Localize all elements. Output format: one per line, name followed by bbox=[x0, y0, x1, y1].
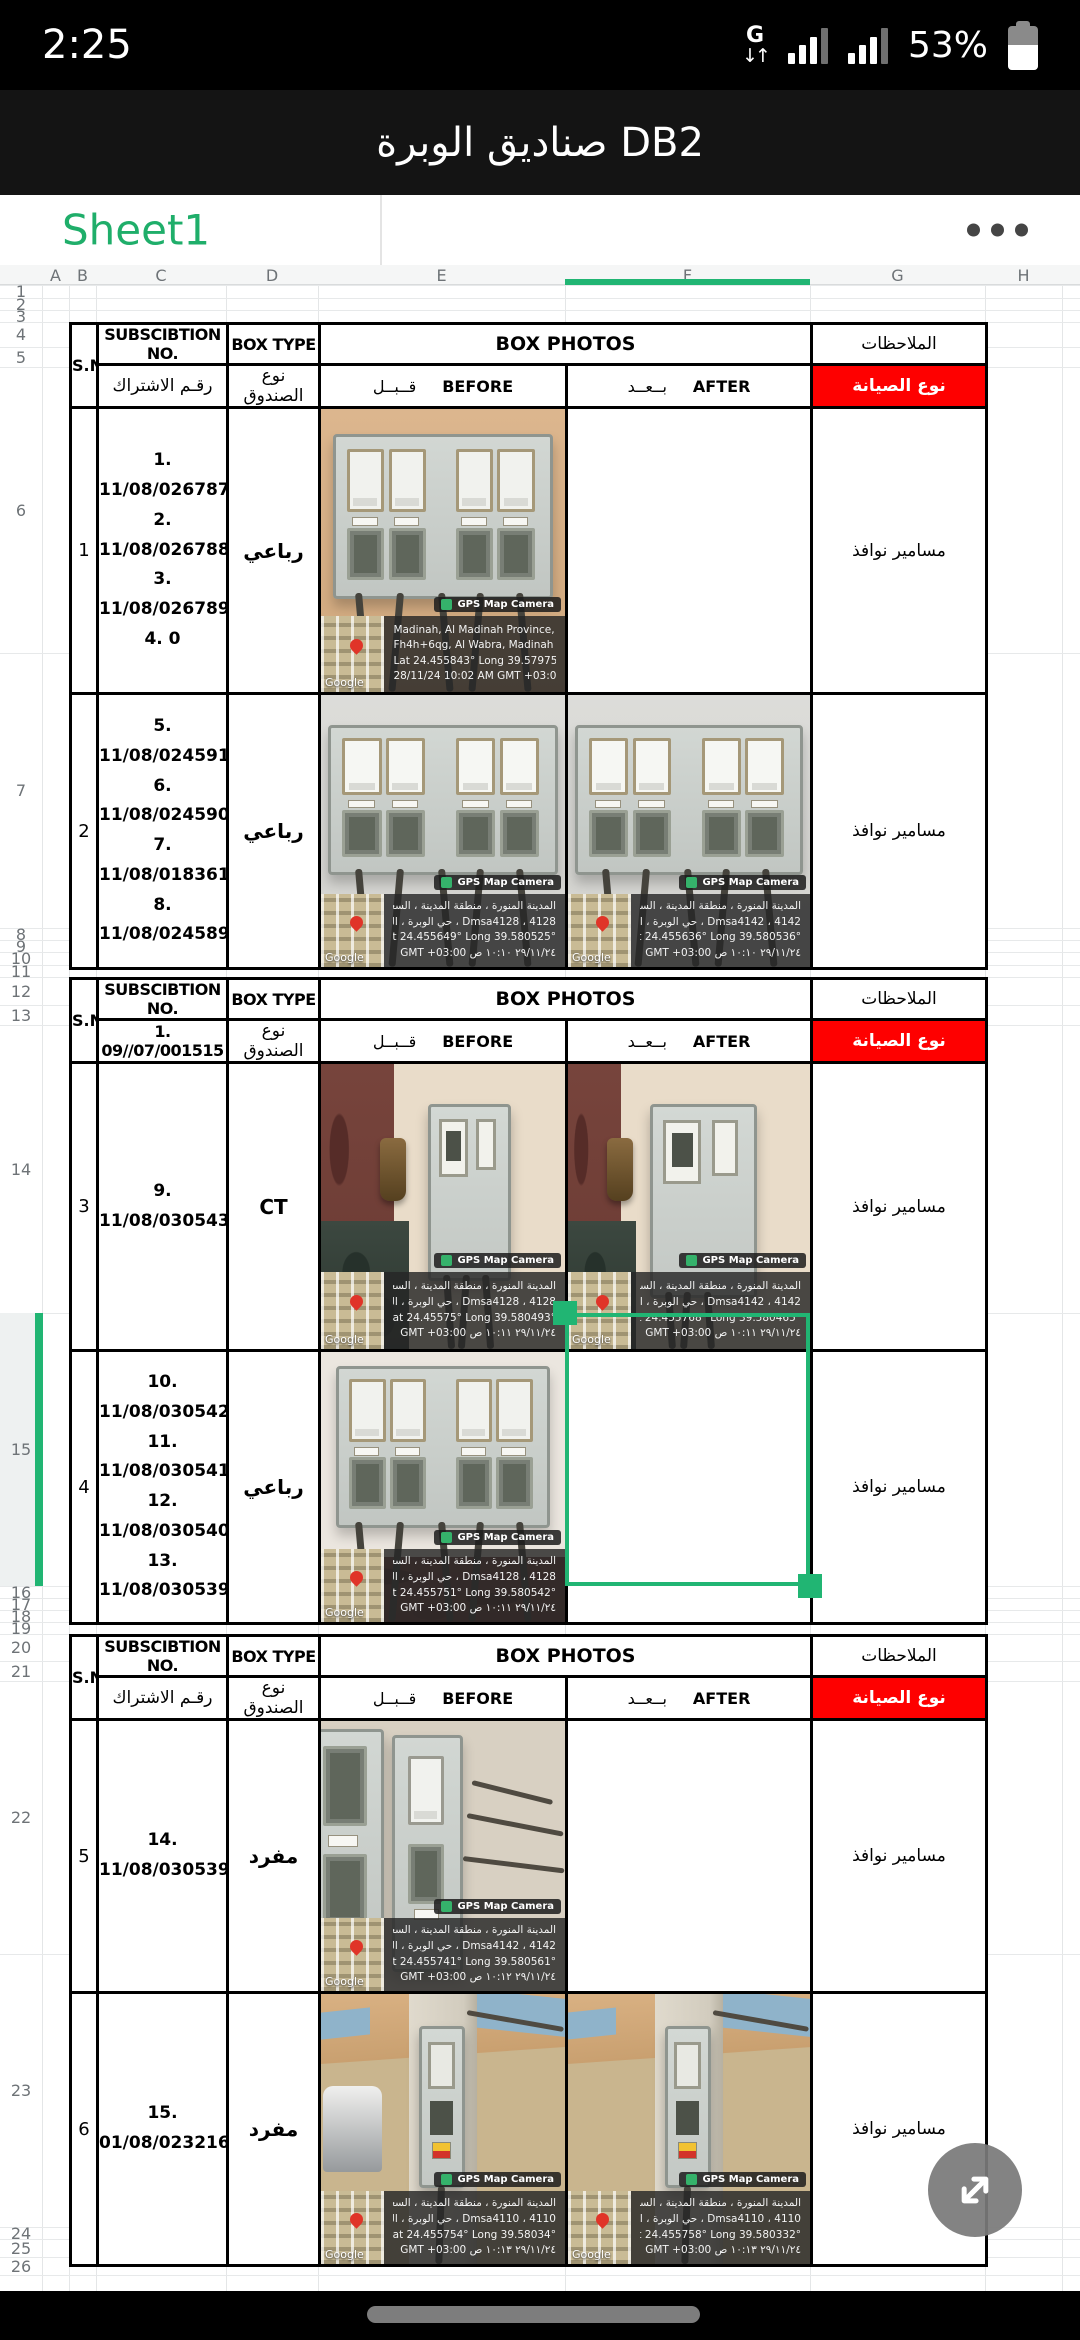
gridline bbox=[42, 265, 43, 2291]
map-pin-icon bbox=[347, 636, 365, 654]
column-header-E[interactable]: E bbox=[318, 265, 565, 285]
gesture-pill[interactable] bbox=[367, 2306, 700, 2323]
cell-after-photo[interactable]: GPS Map CameraGoogleالمدينة المنورة ، من… bbox=[567, 1063, 812, 1351]
meter-glass bbox=[408, 1844, 444, 1904]
meter-label bbox=[503, 517, 529, 526]
watermark-line: المدينة المنورة ، منطقة المدينة ، السعود… bbox=[393, 2197, 556, 2211]
cell-after-photo[interactable]: GPS Map CameraGoogleالمدينة المنورة ، من… bbox=[567, 1993, 812, 2266]
row-header-21[interactable]: 21 bbox=[0, 1661, 42, 1681]
watermark-text: المدينة المنورة ، منطقة المدينة ، السعود… bbox=[384, 1918, 565, 1991]
watermark-line: Lat 24.455741° Long 39.580561° bbox=[393, 1956, 556, 1970]
gps-map-camera-badge: GPS Map Camera bbox=[679, 2172, 806, 2187]
gridline bbox=[1062, 265, 1063, 2291]
cell-before-photo[interactable]: GPS Map CameraGoogleMadinah, Al Madinah … bbox=[320, 408, 567, 694]
cell-sn[interactable]: 1 bbox=[71, 408, 98, 694]
meter-window bbox=[745, 738, 784, 795]
expand-fullscreen-button[interactable] bbox=[928, 2143, 1022, 2237]
watermark-line: Lat 24.455758° Long 39.580332° bbox=[640, 2229, 801, 2243]
signal-bars-icon bbox=[848, 26, 888, 64]
gps-camera-icon bbox=[441, 2174, 452, 2185]
subscription-number: 4. 0 bbox=[99, 625, 226, 655]
cell-subscriptions[interactable]: 10. 11/08/03054211. 11/08/03054112. 11/0… bbox=[98, 1351, 228, 1624]
row-header-14[interactable]: 14 bbox=[0, 1025, 42, 1313]
watermark-line: ٢٩/١١/٢٤ ١٠:١٠ ص GMT +03:00 bbox=[393, 947, 556, 961]
gps-camera-icon bbox=[441, 877, 452, 888]
header-notes[interactable]: الملاحظات bbox=[812, 1636, 987, 1677]
header-box-photos[interactable]: BOX PHOTOS bbox=[320, 979, 812, 1020]
row-header-26[interactable]: 26 bbox=[0, 2257, 42, 2275]
sky bbox=[321, 2008, 370, 2040]
before-label-ar: قــبــل bbox=[373, 1032, 416, 1051]
meter-label bbox=[708, 800, 735, 809]
row-header-6[interactable]: 6 bbox=[0, 367, 42, 653]
meter-window bbox=[456, 1379, 493, 1441]
header-before[interactable]: قــبــلBEFORE bbox=[320, 1020, 567, 1063]
header-before[interactable]: قــبــلBEFORE bbox=[320, 365, 567, 408]
header-box-type[interactable]: BOX TYPE bbox=[228, 1636, 320, 1677]
watermark-text: المدينة المنورة ، منطقة المدينة ، السعود… bbox=[631, 894, 810, 967]
cell-before-photo[interactable]: GPS Map CameraGoogleالمدينة المنورة ، من… bbox=[320, 1720, 567, 1993]
watermark-line: Dmsa4128 ، 4128 ، حي الوبرة ، المدينة ال… bbox=[393, 1571, 556, 1585]
cell-sn[interactable]: 6 bbox=[71, 1993, 98, 2266]
cell-note[interactable]: مسامير نوافذ bbox=[812, 694, 987, 969]
watermark-line: Lat 24.455843° Long 39.579758° bbox=[393, 655, 556, 669]
map-thumbnail: Google bbox=[568, 2191, 631, 2264]
gps-camera-icon bbox=[441, 1532, 452, 1543]
map-pin-icon bbox=[347, 1937, 365, 1955]
meter-box bbox=[328, 725, 557, 875]
meter-label bbox=[328, 1835, 358, 1847]
column-header-D[interactable]: D bbox=[226, 265, 318, 285]
header-subscription-no[interactable]: SUBSCIBTION NO. bbox=[98, 979, 228, 1020]
maintenance-table: S.NSUBSCIBTION NO.BOX TYPEBOX PHOTOSالمل… bbox=[69, 322, 988, 970]
battery-percent: 53% bbox=[908, 25, 988, 66]
warning-sticker bbox=[678, 2142, 696, 2159]
watermark-text: المدينة المنورة ، منطقة المدينة ، السعود… bbox=[384, 1272, 565, 1349]
meter-box bbox=[333, 434, 553, 598]
map-attribution: Google bbox=[325, 1975, 364, 1988]
header-box-photos[interactable]: BOX PHOTOS bbox=[320, 324, 812, 365]
cell-subscriptions[interactable]: 14. 11/08/030539 bbox=[98, 1720, 228, 1993]
meter-glass bbox=[323, 1854, 366, 1924]
meter-window bbox=[497, 449, 534, 512]
status-bar: 2:25 G↓↑ 53% bbox=[0, 0, 1080, 90]
watermark-text: المدينة المنورة ، منطقة المدينة ، السعود… bbox=[631, 1272, 810, 1349]
map-thumbnail: Google bbox=[321, 2191, 384, 2264]
header-sn[interactable]: S.N bbox=[71, 979, 98, 1063]
gps-map-camera-badge: GPS Map Camera bbox=[434, 1253, 561, 1268]
header-after[interactable]: بــعــدAFTER bbox=[567, 1677, 812, 1720]
meter-box bbox=[665, 2026, 711, 2188]
row-header-13[interactable]: 13 bbox=[0, 1005, 42, 1025]
map-pin-icon bbox=[347, 2210, 365, 2228]
map-thumbnail: Google bbox=[568, 894, 631, 967]
column-header-A[interactable]: A bbox=[42, 265, 69, 285]
box-photo-before: GPS Map CameraGoogleالمدينة المنورة ، من… bbox=[321, 1994, 565, 2264]
meter-glass bbox=[702, 810, 741, 857]
map-attribution: Google bbox=[572, 1333, 611, 1346]
cell-subscriptions[interactable]: 15. 01/08/023216 bbox=[98, 1993, 228, 2266]
cell-after-photo[interactable] bbox=[567, 1351, 812, 1624]
meter-window bbox=[496, 1379, 533, 1441]
meter-glass bbox=[342, 810, 381, 857]
selected-column-indicator bbox=[565, 279, 810, 285]
cell-subscriptions[interactable]: 5. 11/08/0245916. 11/08/0245907. 11/08/0… bbox=[98, 694, 228, 969]
wall-cable bbox=[472, 1780, 554, 1805]
after-label-en: AFTER bbox=[693, 1032, 750, 1051]
cell-sn[interactable]: 2 bbox=[71, 694, 98, 969]
header-maintenance-type[interactable]: نوع الصيانة bbox=[812, 1677, 987, 1720]
row-header-20[interactable]: 20 bbox=[0, 1634, 42, 1661]
box-photo-before: GPS Map CameraGoogleMadinah, Al Madinah … bbox=[321, 409, 565, 692]
cell-box-type[interactable]: CT bbox=[228, 1063, 320, 1351]
map-attribution: Google bbox=[325, 1333, 364, 1346]
cell-subscriptions[interactable]: 9. 11/08/030543 bbox=[98, 1063, 228, 1351]
meter-glass bbox=[323, 1746, 366, 1826]
gps-map-camera-badge: GPS Map Camera bbox=[434, 875, 561, 890]
meter-glass bbox=[389, 528, 426, 580]
watermark-line: المدينة المنورة ، منطقة المدينة ، السعود… bbox=[640, 2197, 801, 2211]
row-header-19[interactable]: 19 bbox=[0, 1622, 42, 1634]
selection-handle-bottom-right[interactable] bbox=[798, 1574, 822, 1598]
meter-glass bbox=[347, 528, 384, 580]
subscription-number: 2. 11/08/026788 bbox=[99, 506, 226, 566]
meter-label bbox=[638, 800, 665, 809]
watermark-line: Dmsa4128 ، 4128 ، حي الوبرة ، المدينة ال… bbox=[393, 916, 556, 930]
cell-box-type[interactable]: رباعي bbox=[228, 694, 320, 969]
meter-label bbox=[392, 800, 419, 809]
watermark-text: المدينة المنورة ، منطقة المدينة ، السعود… bbox=[384, 2191, 565, 2264]
ct-meter-display bbox=[446, 1131, 461, 1161]
header-subscription-no[interactable]: SUBSCIBTION NO. bbox=[98, 1636, 228, 1677]
ct-window bbox=[663, 1120, 701, 1184]
cell-box-type[interactable]: مفرد bbox=[228, 1993, 320, 2266]
gps-map-camera-badge: GPS Map Camera bbox=[434, 597, 561, 612]
photo-watermark: Googleالمدينة المنورة ، منطقة المدينة ، … bbox=[568, 1272, 810, 1349]
after-label-en: AFTER bbox=[693, 377, 750, 396]
meter-window bbox=[408, 1756, 444, 1825]
header-subscription-no-ar[interactable]: رقـم الاشتراك bbox=[98, 1677, 228, 1720]
header-box-type-ar[interactable]: نوع الصندوق bbox=[228, 1677, 320, 1720]
row-header-24[interactable]: 24 bbox=[0, 2227, 42, 2239]
cell-after-photo[interactable]: GPS Map CameraGoogleالمدينة المنورة ، من… bbox=[567, 694, 812, 969]
header-maintenance-type[interactable]: نوع الصيانة bbox=[812, 365, 987, 408]
subscription-number: 1. 11/08/026787 bbox=[99, 446, 226, 506]
watermark-line: Dmsa4142 ، 4142 ، حي الوبرة ، المدينة ال… bbox=[640, 1296, 801, 1310]
watermark-line: Lat 24.455751° Long 39.580542° bbox=[393, 1587, 556, 1601]
meter-label bbox=[461, 1447, 486, 1456]
subscription-number: 5. 11/08/024591 bbox=[99, 712, 226, 772]
meter-glass bbox=[456, 810, 495, 857]
meter-window bbox=[589, 738, 628, 795]
meter-label bbox=[595, 800, 622, 809]
row-header-12[interactable]: 12 bbox=[0, 977, 42, 1005]
cell-note[interactable]: مسامير نوافذ bbox=[812, 1063, 987, 1351]
map-pin-icon bbox=[594, 2210, 612, 2228]
watermark-line: Dmsa4128 ، 4128 ، حي الوبرة ، المدينة ال… bbox=[393, 1296, 556, 1310]
box-photo-after: GPS Map CameraGoogleالمدينة المنورة ، من… bbox=[568, 1994, 810, 2264]
meter-glass bbox=[430, 2101, 453, 2135]
box-photo-before: GPS Map CameraGoogleالمدينة المنورة ، من… bbox=[321, 1064, 565, 1349]
meter-glass bbox=[390, 1457, 427, 1508]
gps-map-camera-badge: GPS Map Camera bbox=[434, 1530, 561, 1545]
subscription-number: 3. 11/08/026789 bbox=[99, 565, 226, 625]
watermark-line: Lat 24.455754° Long 39.58034° bbox=[393, 2229, 556, 2243]
subscription-number: 8. 11/08/024589 bbox=[99, 891, 226, 951]
map-attribution: Google bbox=[325, 676, 364, 689]
meter-window bbox=[349, 1379, 386, 1441]
map-attribution: Google bbox=[325, 2248, 364, 2261]
meter-flap bbox=[428, 2042, 455, 2089]
warning-sticker bbox=[432, 2142, 451, 2159]
watermark-text: المدينة المنورة ، منطقة المدينة ، السعود… bbox=[384, 1549, 565, 1622]
meter-glass bbox=[349, 1457, 386, 1508]
gridline bbox=[0, 298, 1080, 299]
after-label-ar: بــعــد bbox=[628, 1689, 667, 1708]
meter-glass bbox=[745, 810, 784, 857]
watermark-line: Fh4h+6qg, Al Wabra, Madinah 42371, Saudi… bbox=[393, 639, 556, 653]
photo-watermark: Googleالمدينة المنورة ، منطقة المدينة ، … bbox=[321, 2191, 565, 2264]
cell-before-photo[interactable]: GPS Map CameraGoogleالمدينة المنورة ، من… bbox=[320, 1351, 567, 1624]
meter-window bbox=[342, 738, 381, 795]
subscription-number: 6. 11/08/024590 bbox=[99, 772, 226, 832]
meter-window bbox=[390, 1379, 427, 1441]
before-label-en: BEFORE bbox=[442, 1689, 513, 1708]
gridline bbox=[0, 2275, 1080, 2276]
cell-box-type[interactable]: رباعي bbox=[228, 1351, 320, 1624]
meter-label bbox=[394, 517, 420, 526]
ct-window bbox=[439, 1119, 468, 1177]
watermark-line: Dmsa4110 ، 4110 ، حي الوبرة ، المدينة ال… bbox=[640, 2213, 801, 2227]
cell-note[interactable]: مسامير نوافذ bbox=[812, 408, 987, 694]
map-thumbnail: Google bbox=[321, 894, 384, 967]
spreadsheet-grid[interactable]: ABCDEFGH12345678910111213141516171819202… bbox=[0, 265, 1080, 2291]
photo-watermark: Googleالمدينة المنورة ، منطقة المدينة ، … bbox=[321, 1549, 565, 1622]
cell-sn[interactable]: 4 bbox=[71, 1351, 98, 1624]
after-label-ar: بــعــد bbox=[628, 377, 667, 396]
meter-label bbox=[348, 800, 375, 809]
watermark-line: المدينة المنورة ، منطقة المدينة ، السعود… bbox=[393, 900, 556, 914]
gps-map-camera-badge: GPS Map Camera bbox=[679, 875, 806, 890]
watermark-text: Madinah, Al Madinah Province, Saudi Arab… bbox=[384, 616, 565, 692]
box-photo-before: GPS Map CameraGoogleالمدينة المنورة ، من… bbox=[321, 1721, 565, 1991]
cell-subscriptions[interactable]: 1. 11/08/0267872. 11/08/0267883. 11/08/0… bbox=[98, 408, 228, 694]
watermark-line: Dmsa4110 ، 4110 ، حي الوبرة ، المدينة ال… bbox=[393, 2213, 556, 2227]
watermark-line: ٢٩/١١/٢٤ ١٠:١٠ ص GMT +03:00 bbox=[640, 947, 801, 961]
map-pin-icon bbox=[347, 1292, 365, 1310]
row-header-25[interactable]: 25 bbox=[0, 2239, 42, 2257]
gps-map-camera-badge: GPS Map Camera bbox=[434, 2172, 561, 2187]
wall-lantern bbox=[380, 1138, 407, 1201]
cell-note[interactable]: مسامير نوافذ bbox=[812, 1351, 987, 1624]
wall-cable bbox=[462, 1856, 564, 1873]
meter-flap bbox=[674, 2042, 700, 2089]
meter-box bbox=[575, 725, 802, 875]
row-header-5[interactable]: 5 bbox=[0, 347, 42, 367]
meter-glass bbox=[633, 810, 672, 857]
watermark-line: Dmsa4142 ، 4142 ، حي الوبرة ، المدينة ال… bbox=[393, 1940, 556, 1954]
meter-window bbox=[347, 449, 384, 512]
battery-icon bbox=[1008, 21, 1038, 70]
sky bbox=[568, 2008, 616, 2040]
gps-camera-icon bbox=[686, 2174, 697, 2185]
photo-watermark: GoogleMadinah, Al Madinah Province, Saud… bbox=[321, 616, 565, 692]
watermark-line: Madinah, Al Madinah Province, Saudi Arab… bbox=[393, 624, 556, 638]
gps-camera-icon bbox=[686, 877, 697, 888]
subscription-number: 7. 11/08/018361 bbox=[99, 831, 226, 891]
header-subscription-no-ar[interactable]: 1. 09//07/001515 bbox=[98, 1020, 228, 1063]
header-notes[interactable]: الملاحظات bbox=[812, 979, 987, 1020]
map-attribution: Google bbox=[572, 951, 611, 964]
signal-bars-icon bbox=[788, 26, 828, 64]
tab-sheet1[interactable]: Sheet1 bbox=[62, 206, 210, 255]
cell-sn[interactable]: 3 bbox=[71, 1063, 98, 1351]
photo-watermark: Googleالمدينة المنورة ، منطقة المدينة ، … bbox=[321, 1918, 565, 1991]
cell-sn[interactable]: 5 bbox=[71, 1720, 98, 1993]
header-box-photos[interactable]: BOX PHOTOS bbox=[320, 1636, 812, 1677]
subscription-number: 15. 01/08/023216 bbox=[99, 2099, 226, 2159]
meter-label bbox=[751, 800, 778, 809]
cell-after-photo[interactable] bbox=[567, 1720, 812, 1993]
meter-label bbox=[352, 517, 378, 526]
watermark-line: ٢٩/١١/٢٤ ١٠:١١ ص GMT +03:00 bbox=[640, 1327, 801, 1341]
meter-box bbox=[419, 2026, 465, 2188]
column-header-H[interactable]: H bbox=[985, 265, 1062, 285]
map-thumbnail: Google bbox=[321, 1549, 384, 1622]
meter-glass bbox=[676, 2101, 699, 2135]
map-pin-icon bbox=[594, 1292, 612, 1310]
map-pin-icon bbox=[347, 913, 365, 931]
meter-glass bbox=[456, 1457, 493, 1508]
watermark-line: ٢٩/١١/٢٤ ١٠:١٢ ص GMT +03:00 bbox=[393, 1971, 556, 1985]
subscription-number: 9. 11/08/030543 bbox=[99, 1177, 226, 1237]
row-header-11[interactable]: 11 bbox=[0, 965, 42, 977]
map-attribution: Google bbox=[325, 1606, 364, 1619]
watermark-line: Lat 24.455636° Long 39.580536° bbox=[640, 931, 801, 945]
cell-after-photo[interactable] bbox=[567, 408, 812, 694]
header-after[interactable]: بــعــدAFTER bbox=[567, 1020, 812, 1063]
mobile-data-g-icon: G↓↑ bbox=[742, 25, 768, 66]
header-before[interactable]: قــبــلBEFORE bbox=[320, 1677, 567, 1720]
box-photo-before: GPS Map CameraGoogleالمدينة المنورة ، من… bbox=[321, 1352, 565, 1622]
map-thumbnail: Google bbox=[321, 1272, 384, 1349]
cell-note[interactable]: مسامير نوافذ bbox=[812, 1720, 987, 1993]
meter-glass bbox=[386, 810, 425, 857]
header-maintenance-type[interactable]: نوع الصيانة bbox=[812, 1020, 987, 1063]
watermark-line: 28/11/24 10:02 AM GMT +03:00 bbox=[393, 670, 556, 684]
watermark-line: المدينة المنورة ، منطقة المدينة ، السعود… bbox=[393, 1924, 556, 1938]
meter-label bbox=[461, 517, 487, 526]
cell-box-type[interactable]: رباعي bbox=[228, 408, 320, 694]
meter-window bbox=[702, 738, 741, 795]
watermark-line: ٢٩/١١/٢٤ ١٠:١٣ ص GMT +03:00 bbox=[393, 2244, 556, 2258]
gps-camera-icon bbox=[686, 1255, 697, 1266]
row-header-7[interactable]: 7 bbox=[0, 653, 42, 928]
box-photo-after: GPS Map CameraGoogleالمدينة المنورة ، من… bbox=[568, 1064, 810, 1349]
watermark-line: Lat 24.455649° Long 39.580525° bbox=[393, 931, 556, 945]
before-label-ar: قــبــل bbox=[373, 1689, 416, 1708]
gps-camera-icon bbox=[441, 1901, 452, 1912]
cell-before-photo[interactable]: GPS Map CameraGoogleالمدينة المنورة ، من… bbox=[320, 1993, 567, 2266]
map-attribution: Google bbox=[325, 951, 364, 964]
document-title: DB2 صناديق الوبرة bbox=[0, 90, 1080, 195]
tab-separator bbox=[380, 195, 382, 265]
meter-glass bbox=[589, 810, 628, 857]
wall-cable bbox=[467, 1813, 564, 1837]
header-subscription-no[interactable]: SUBSCIBTION NO. bbox=[98, 324, 228, 365]
column-header-G[interactable]: G bbox=[810, 265, 985, 285]
gridline bbox=[0, 285, 1080, 286]
row-header-22[interactable]: 22 bbox=[0, 1681, 42, 1954]
cell-before-photo[interactable]: GPS Map CameraGoogleالمدينة المنورة ، من… bbox=[320, 1063, 567, 1351]
more-options-icon[interactable] bbox=[967, 224, 1028, 237]
phone-screen: 2:25 G↓↑ 53% DB2 صناديق الوبرة Sheet1 AB… bbox=[0, 0, 1080, 2340]
meter-window bbox=[386, 738, 425, 795]
before-label-en: BEFORE bbox=[442, 377, 513, 396]
selection-handle-top-left[interactable] bbox=[553, 1301, 577, 1325]
map-pin-icon bbox=[347, 1568, 365, 1586]
header-subscription-no-ar[interactable]: رقـم الاشتراك bbox=[98, 365, 228, 408]
gps-camera-icon bbox=[441, 599, 452, 610]
subscription-number: 10. 11/08/030542 bbox=[99, 1368, 226, 1428]
watermark-line: المدينة المنورة ، منطقة المدينة ، السعود… bbox=[393, 1555, 556, 1569]
gps-camera-icon bbox=[441, 1255, 452, 1266]
subscription-number: 12. 11/08/030540 bbox=[99, 1487, 226, 1547]
header-box-type-ar[interactable]: نوع الصندوق bbox=[228, 365, 320, 408]
gridline bbox=[0, 310, 1080, 311]
subscription-number: 11. 11/08/030541 bbox=[99, 1428, 226, 1488]
header-after[interactable]: بــعــدAFTER bbox=[567, 365, 812, 408]
gps-map-camera-badge: GPS Map Camera bbox=[679, 1253, 806, 1268]
cell-box-type[interactable]: مفرد bbox=[228, 1720, 320, 1993]
navigation-bar bbox=[0, 2291, 1080, 2340]
meter-window bbox=[456, 738, 495, 795]
watermark-line: المدينة المنورة ، منطقة المدينة ، السعود… bbox=[393, 1280, 556, 1294]
watermark-line: المدينة المنورة ، منطقة المدينة ، السعود… bbox=[640, 1280, 801, 1294]
before-label-ar: قــبــل bbox=[373, 377, 416, 396]
watermark-line: Lat 24.45575° Long 39.580493° bbox=[393, 1312, 556, 1326]
box-photo-before: GPS Map CameraGoogleالمدينة المنورة ، من… bbox=[321, 695, 565, 967]
column-header-C[interactable]: C bbox=[96, 265, 226, 285]
maintenance-table: S.NSUBSCIBTION NO.BOX TYPEBOX PHOTOSالمل… bbox=[69, 1634, 988, 2267]
row-header-4[interactable]: 4 bbox=[0, 322, 42, 347]
header-sn[interactable]: S.N bbox=[71, 324, 98, 408]
ct-meter-box bbox=[650, 1104, 756, 1298]
meter-glass bbox=[456, 528, 493, 580]
meter-window bbox=[456, 449, 493, 512]
expand-arrows-icon bbox=[949, 2164, 1001, 2216]
watermark-line: المدينة المنورة ، منطقة المدينة ، السعود… bbox=[640, 900, 801, 914]
ct-slot bbox=[712, 1120, 738, 1176]
map-thumbnail: Google bbox=[321, 616, 384, 692]
map-pin-icon bbox=[594, 913, 612, 931]
header-notes[interactable]: الملاحظات bbox=[812, 324, 987, 365]
header-box-type-ar[interactable]: نوع الصندوق bbox=[228, 1020, 320, 1063]
photo-watermark: Googleالمدينة المنورة ، منطقة المدينة ، … bbox=[321, 894, 565, 967]
meter-box bbox=[336, 1366, 551, 1528]
after-label-ar: بــعــد bbox=[628, 1032, 667, 1051]
column-header-B[interactable]: B bbox=[69, 265, 96, 285]
header-box-type[interactable]: BOX TYPE bbox=[228, 324, 320, 365]
header-box-type[interactable]: BOX TYPE bbox=[228, 979, 320, 1020]
meter-window bbox=[500, 738, 539, 795]
header-sn[interactable]: S.N bbox=[71, 1636, 98, 1720]
photo-watermark: Googleالمدينة المنورة ، منطقة المدينة ، … bbox=[568, 2191, 810, 2264]
row-header-3[interactable]: 3 bbox=[0, 310, 42, 322]
row-header-23[interactable]: 23 bbox=[0, 1954, 42, 2227]
cell-before-photo[interactable]: GPS Map CameraGoogleالمدينة المنورة ، من… bbox=[320, 694, 567, 969]
maintenance-table: S.NSUBSCIBTION NO.BOX TYPEBOX PHOTOSالمل… bbox=[69, 977, 988, 1625]
